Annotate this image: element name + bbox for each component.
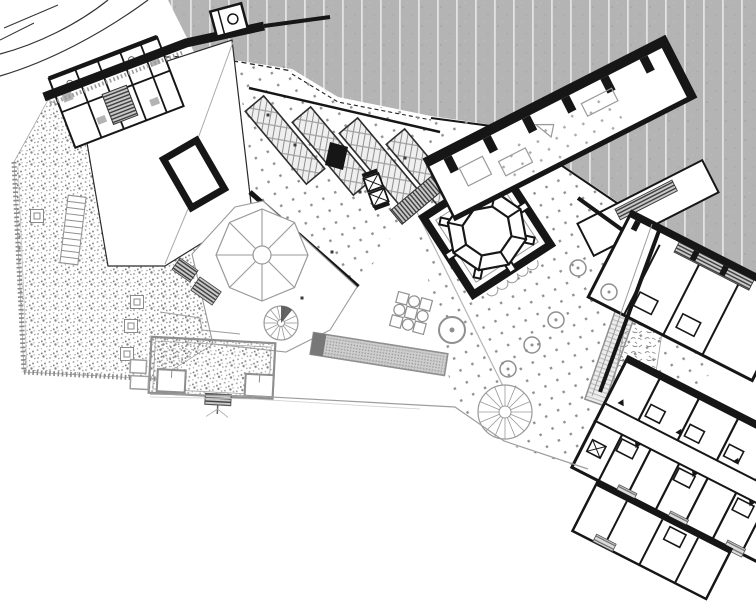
plaza-dark-dot — [331, 251, 334, 254]
garden-planter — [121, 348, 134, 361]
entry-canopy-stair — [204, 393, 231, 417]
boundary-curve-outer — [0, 0, 108, 54]
plaza-dark-dot — [267, 114, 270, 117]
architectural-plan-canvas — [0, 0, 756, 606]
plaza-dark-dot — [294, 144, 297, 147]
boundary-spur-lines — [0, 5, 58, 40]
garden-planter — [125, 320, 138, 333]
garden-planter — [131, 296, 144, 309]
umbrella-roof — [216, 209, 308, 301]
spiral-stair-large — [478, 385, 532, 439]
plaza-dark-dot — [404, 157, 407, 160]
round-fountain — [439, 317, 465, 343]
tree-center — [507, 368, 510, 371]
long-pool — [310, 332, 448, 375]
tree-center — [577, 267, 580, 270]
spiral-stair-small — [264, 306, 298, 340]
garden-planter — [31, 210, 44, 223]
table-cluster — [390, 292, 433, 335]
plaza-dark-dot — [301, 297, 304, 300]
tree-center — [608, 291, 611, 294]
umbrella-hub — [253, 246, 271, 264]
pool-basin — [310, 332, 448, 375]
plaza-dark-dot — [359, 191, 362, 194]
site-plan-drawing — [0, 0, 756, 606]
tree-center — [555, 319, 558, 322]
tree-center — [531, 344, 534, 347]
